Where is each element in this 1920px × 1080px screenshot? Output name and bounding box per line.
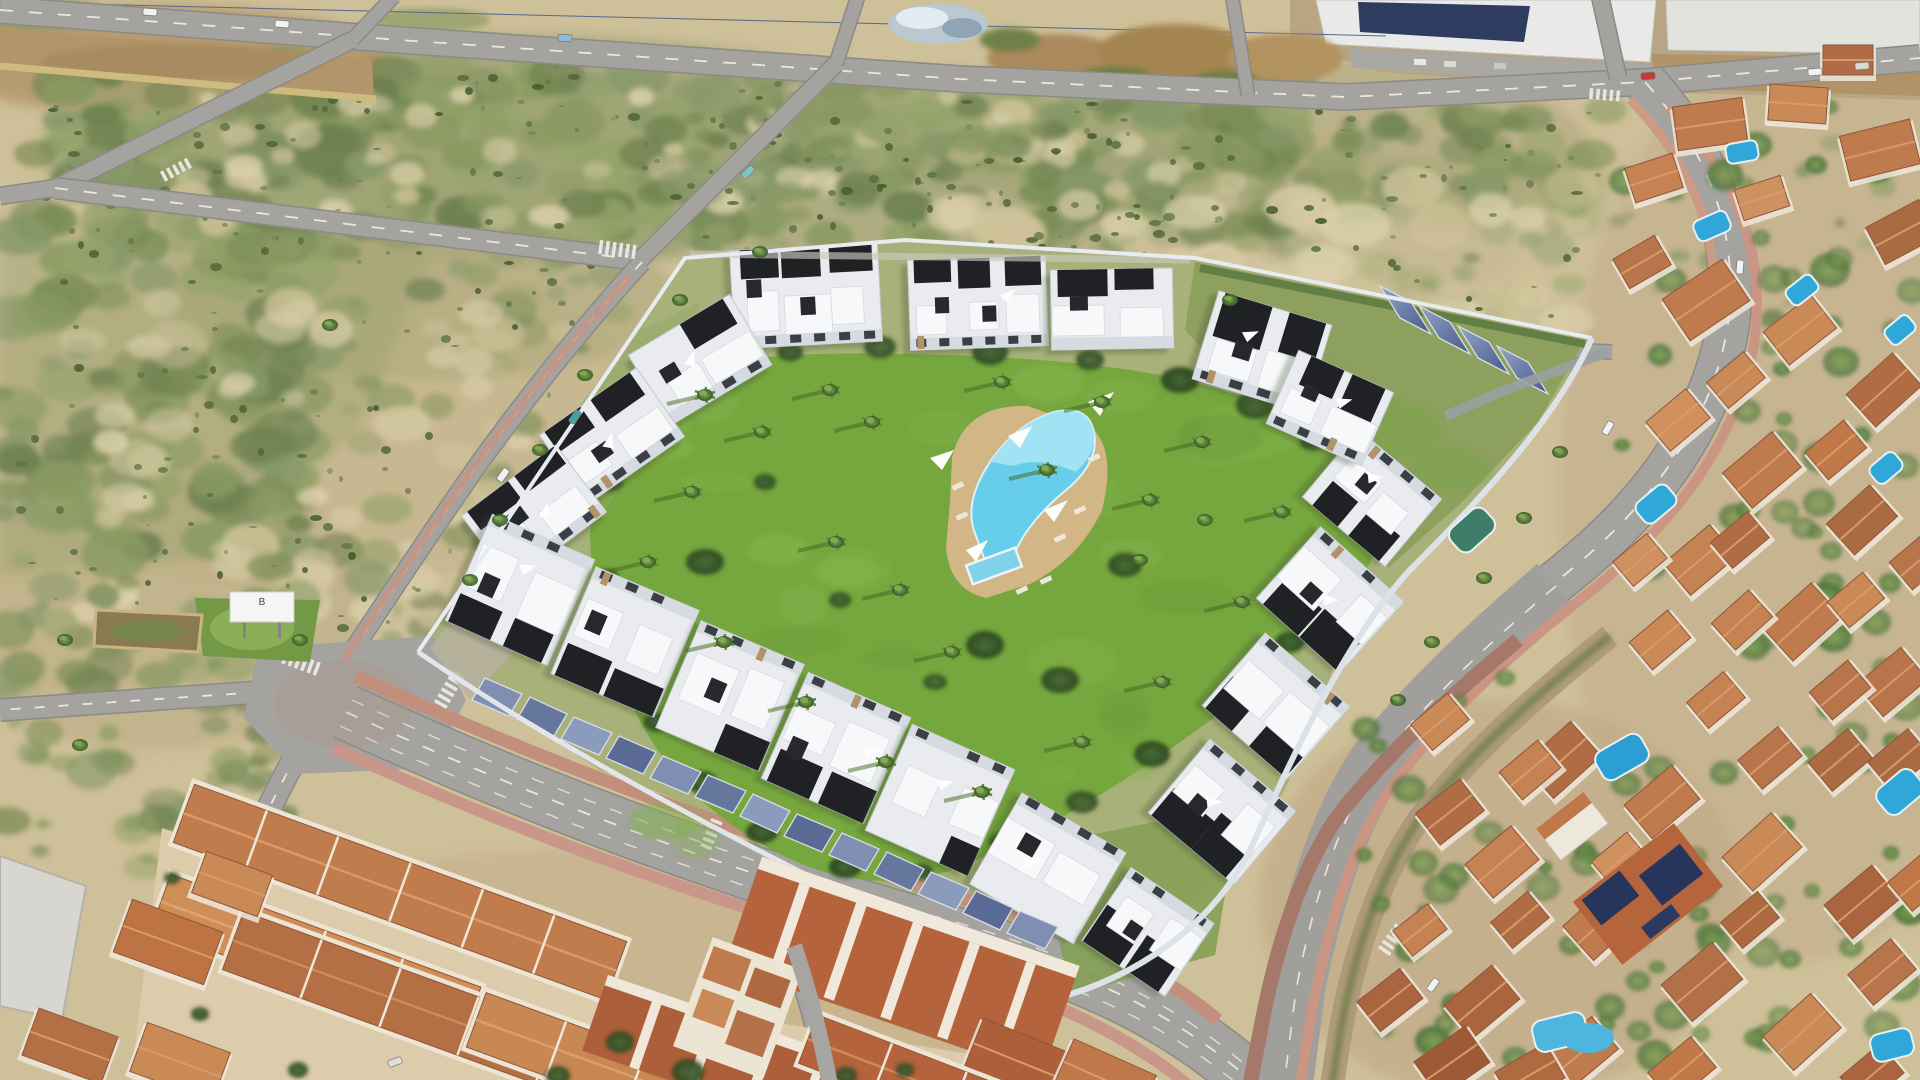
svg-text:B: B: [259, 597, 266, 608]
